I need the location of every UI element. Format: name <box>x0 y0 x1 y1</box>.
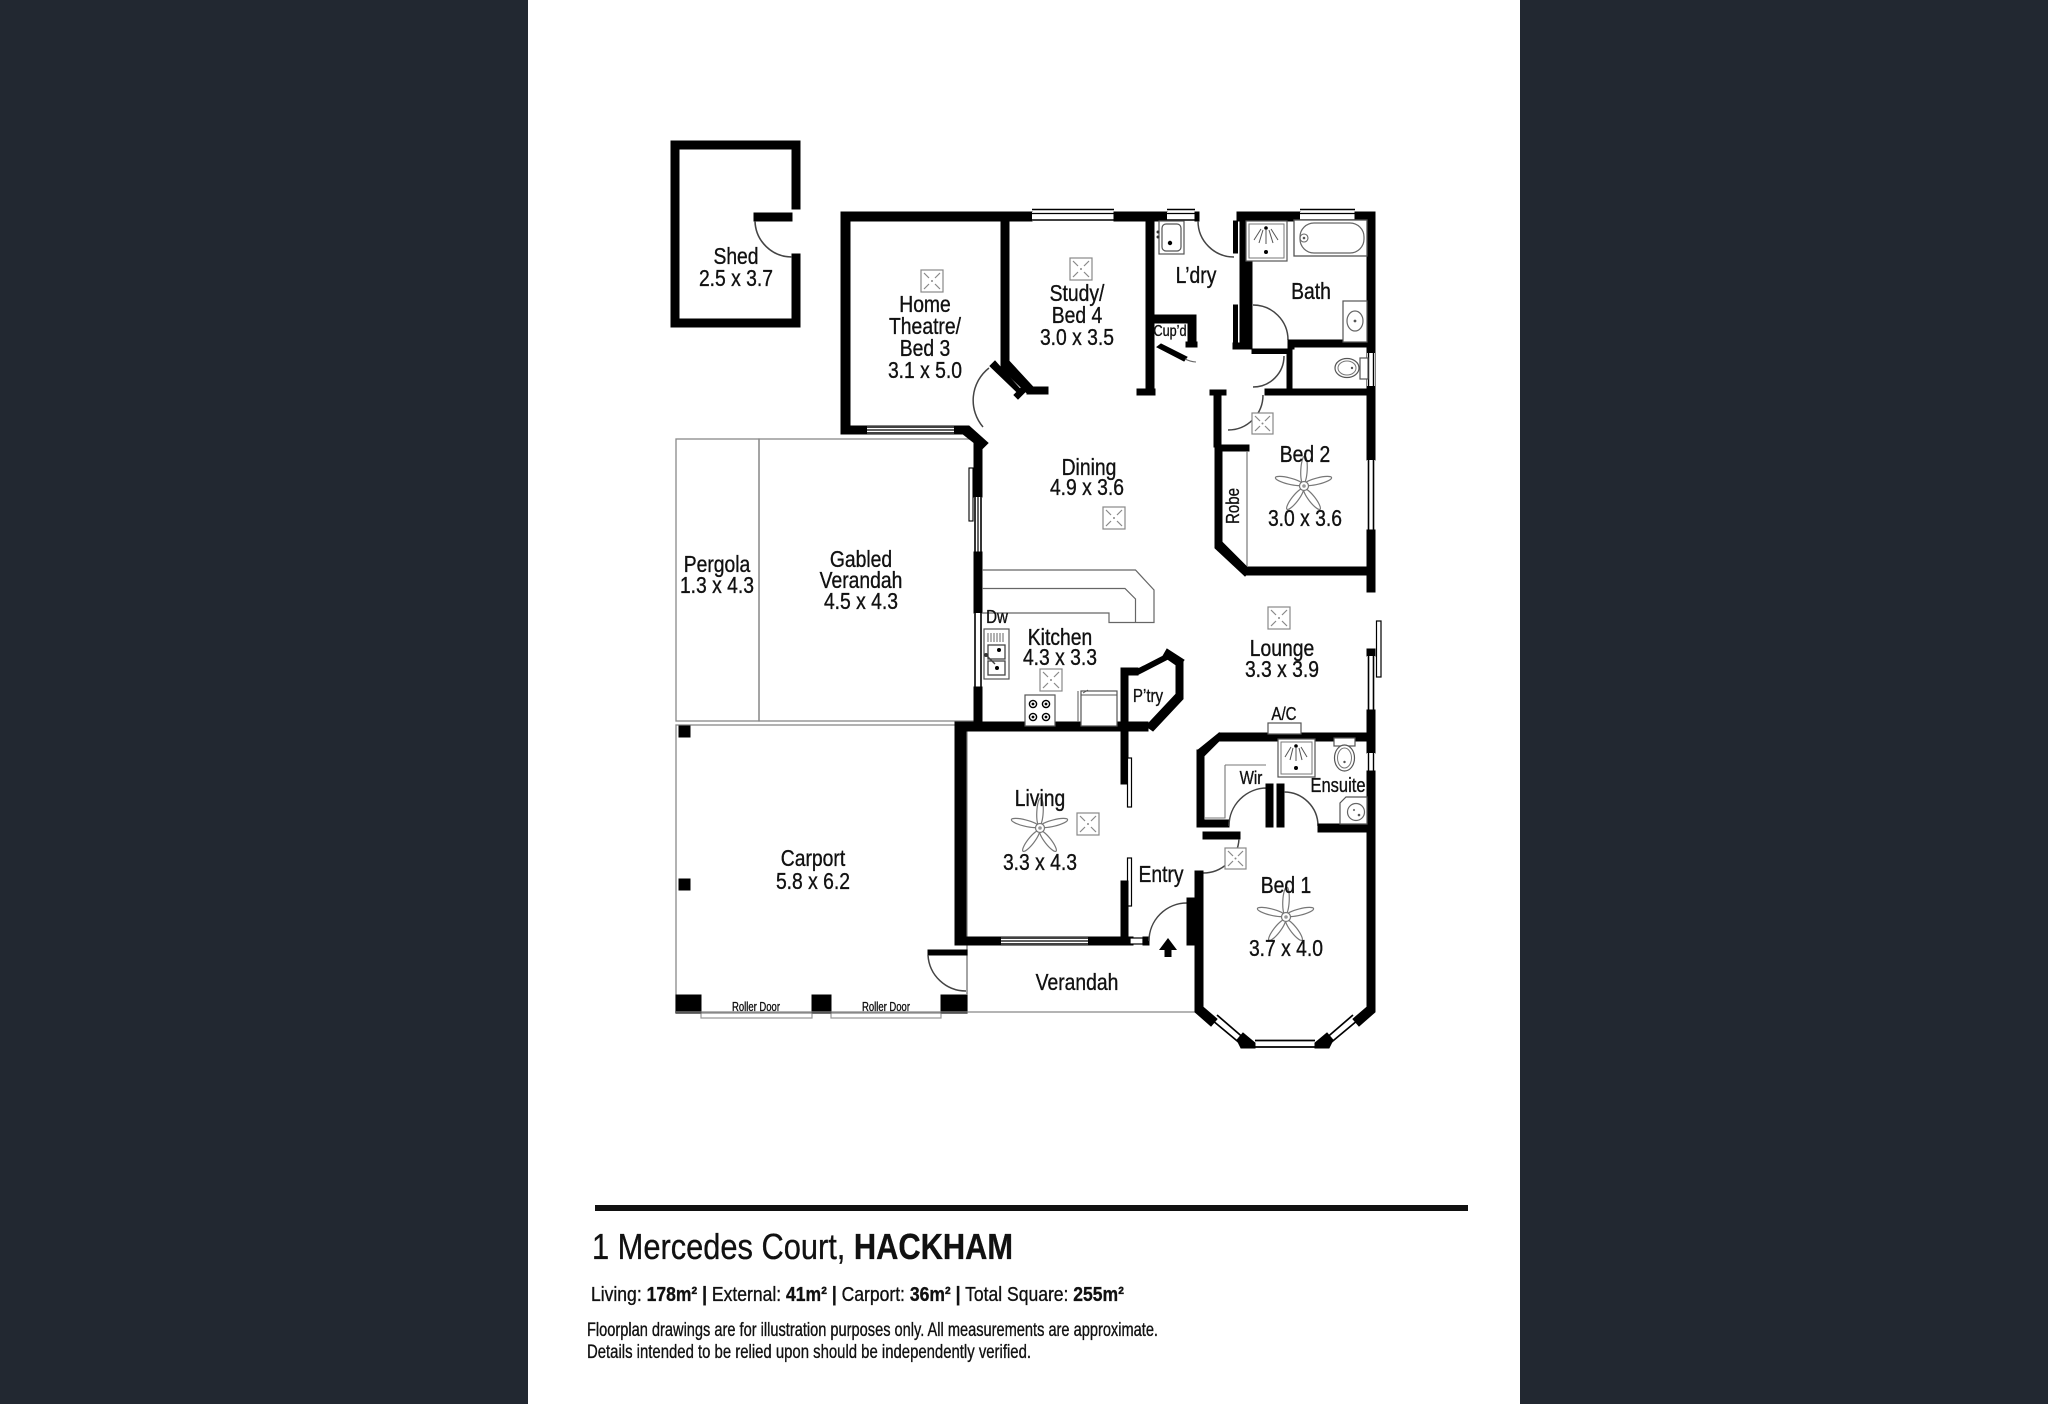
svg-text:Living: 178m² | External: 41m²: Living: 178m² | External: 41m² | Carport… <box>591 1283 1124 1306</box>
svg-text:Details intended to be relied: Details intended to be relied upon shoul… <box>587 1342 1031 1363</box>
svg-text:4.3 x 3.3: 4.3 x 3.3 <box>1023 644 1097 670</box>
svg-text:Bed 2: Bed 2 <box>1280 441 1331 467</box>
svg-text:3.0 x 3.6: 3.0 x 3.6 <box>1268 505 1342 531</box>
svg-text:4.9 x 3.6: 4.9 x 3.6 <box>1050 474 1124 500</box>
svg-text:3.3 x 3.9: 3.3 x 3.9 <box>1245 656 1319 682</box>
svg-text:Wir: Wir <box>1240 768 1263 788</box>
svg-text:Verandah: Verandah <box>1036 969 1119 995</box>
svg-text:2.5 x 3.7: 2.5 x 3.7 <box>699 265 773 291</box>
svg-text:Ensuite: Ensuite <box>1311 775 1366 797</box>
svg-text:Living: Living <box>1015 785 1066 811</box>
svg-text:Floorplan drawings are for ill: Floorplan drawings are for illustration … <box>587 1320 1158 1341</box>
svg-text:Bed 1: Bed 1 <box>1261 872 1312 898</box>
svg-text:3.7 x 4.0: 3.7 x 4.0 <box>1249 935 1323 961</box>
svg-text:3.0 x 3.5: 3.0 x 3.5 <box>1040 324 1114 350</box>
svg-text:A/C: A/C <box>1271 704 1296 724</box>
svg-text:Bath: Bath <box>1291 278 1331 304</box>
svg-text:3.3 x 4.3: 3.3 x 4.3 <box>1003 849 1077 875</box>
svg-text:1 Mercedes Court, HACKHAM: 1 Mercedes Court, HACKHAM <box>592 1226 1013 1267</box>
svg-text:Dw: Dw <box>986 607 1009 627</box>
svg-text:5.8 x 6.2: 5.8 x 6.2 <box>776 868 850 894</box>
svg-text:3.1 x 5.0: 3.1 x 5.0 <box>888 357 962 383</box>
svg-text:Cup’d: Cup’d <box>1154 323 1187 340</box>
svg-text:Robe: Robe <box>1223 488 1243 524</box>
svg-text:4.5 x 4.3: 4.5 x 4.3 <box>824 588 898 614</box>
svg-text:1.3 x 4.3: 1.3 x 4.3 <box>680 572 754 598</box>
svg-text:P’try: P’try <box>1133 686 1163 706</box>
svg-text:Entry: Entry <box>1138 861 1184 887</box>
svg-text:L’dry: L’dry <box>1176 262 1217 288</box>
